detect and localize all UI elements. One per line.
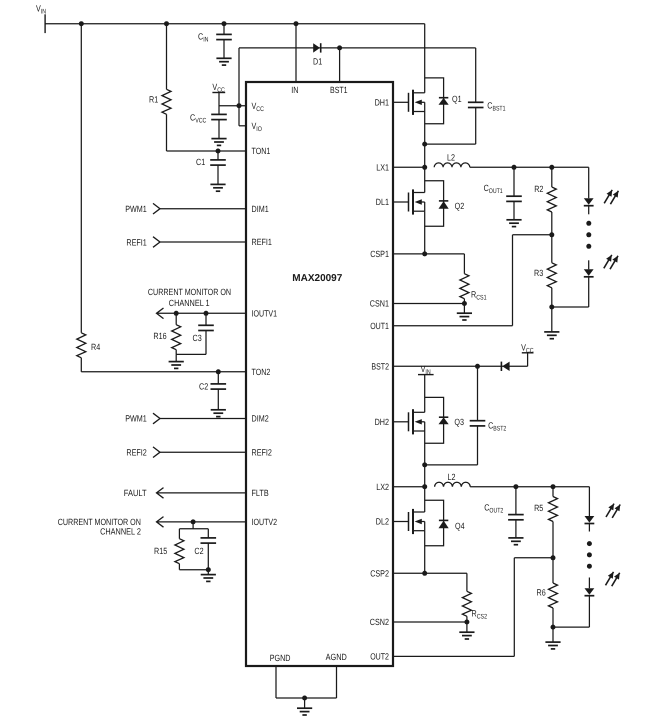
svg-text:CURRENT MONITOR ON: CURRENT MONITOR ON bbox=[148, 287, 231, 297]
svg-text:MAX20097: MAX20097 bbox=[292, 273, 342, 284]
svg-text:DH2: DH2 bbox=[375, 417, 389, 427]
svg-text:CHANNEL 2: CHANNEL 2 bbox=[100, 526, 141, 536]
svg-text:C2: C2 bbox=[199, 381, 208, 391]
svg-text:R2: R2 bbox=[534, 184, 543, 194]
svg-text:DL2: DL2 bbox=[376, 517, 389, 527]
svg-text:REFI1: REFI1 bbox=[126, 237, 146, 247]
svg-text:IOUTV2: IOUTV2 bbox=[252, 517, 278, 527]
svg-text:PWM1: PWM1 bbox=[125, 204, 147, 214]
svg-text:CSN2: CSN2 bbox=[370, 617, 389, 627]
svg-text:R5: R5 bbox=[534, 503, 543, 513]
svg-text:Q4: Q4 bbox=[455, 521, 465, 531]
svg-text:LX2: LX2 bbox=[376, 482, 389, 492]
svg-text:FLTB: FLTB bbox=[252, 488, 269, 498]
svg-text:OUT2: OUT2 bbox=[370, 652, 389, 662]
svg-text:TON1: TON1 bbox=[252, 146, 271, 156]
svg-text:Q2: Q2 bbox=[455, 201, 465, 211]
svg-text:IN: IN bbox=[291, 85, 298, 95]
svg-text:CHANNEL 1: CHANNEL 1 bbox=[169, 298, 210, 308]
svg-text:REFI2: REFI2 bbox=[126, 447, 146, 457]
svg-text:BST2: BST2 bbox=[371, 362, 389, 372]
svg-text:R4: R4 bbox=[91, 342, 100, 352]
svg-text:DIM1: DIM1 bbox=[252, 204, 269, 214]
svg-text:IOUTV1: IOUTV1 bbox=[252, 309, 278, 319]
svg-text:C1: C1 bbox=[196, 157, 205, 167]
svg-text:L2: L2 bbox=[447, 153, 455, 163]
svg-text:CSN1: CSN1 bbox=[370, 299, 389, 309]
svg-text:BST1: BST1 bbox=[330, 85, 348, 95]
svg-text:DH1: DH1 bbox=[375, 98, 389, 108]
svg-text:OUT1: OUT1 bbox=[370, 321, 389, 331]
svg-text:FAULT: FAULT bbox=[124, 488, 147, 498]
svg-text:R6: R6 bbox=[537, 587, 546, 597]
svg-text:C2: C2 bbox=[194, 546, 203, 556]
svg-text:R15: R15 bbox=[154, 546, 167, 556]
svg-text:Q1: Q1 bbox=[452, 94, 462, 104]
svg-text:L2: L2 bbox=[448, 472, 456, 482]
svg-text:R16: R16 bbox=[153, 331, 166, 341]
svg-text:AGND: AGND bbox=[326, 652, 348, 662]
svg-text:REFI1: REFI1 bbox=[252, 237, 272, 247]
svg-text:Q3: Q3 bbox=[454, 417, 464, 427]
svg-text:TON2: TON2 bbox=[252, 367, 271, 377]
svg-text:R1: R1 bbox=[149, 95, 158, 105]
svg-text:R3: R3 bbox=[534, 268, 543, 278]
svg-text:PWM1: PWM1 bbox=[125, 414, 147, 424]
svg-text:PGND: PGND bbox=[270, 653, 291, 663]
svg-text:DIM2: DIM2 bbox=[252, 414, 269, 424]
svg-text:D1: D1 bbox=[313, 57, 322, 67]
svg-text:C3: C3 bbox=[193, 333, 202, 343]
svg-text:DL1: DL1 bbox=[376, 197, 389, 207]
svg-text:CSP1: CSP1 bbox=[370, 249, 389, 259]
svg-text:CSP2: CSP2 bbox=[370, 569, 389, 579]
svg-text:LX1: LX1 bbox=[376, 163, 389, 173]
svg-text:REFI2: REFI2 bbox=[252, 447, 272, 457]
